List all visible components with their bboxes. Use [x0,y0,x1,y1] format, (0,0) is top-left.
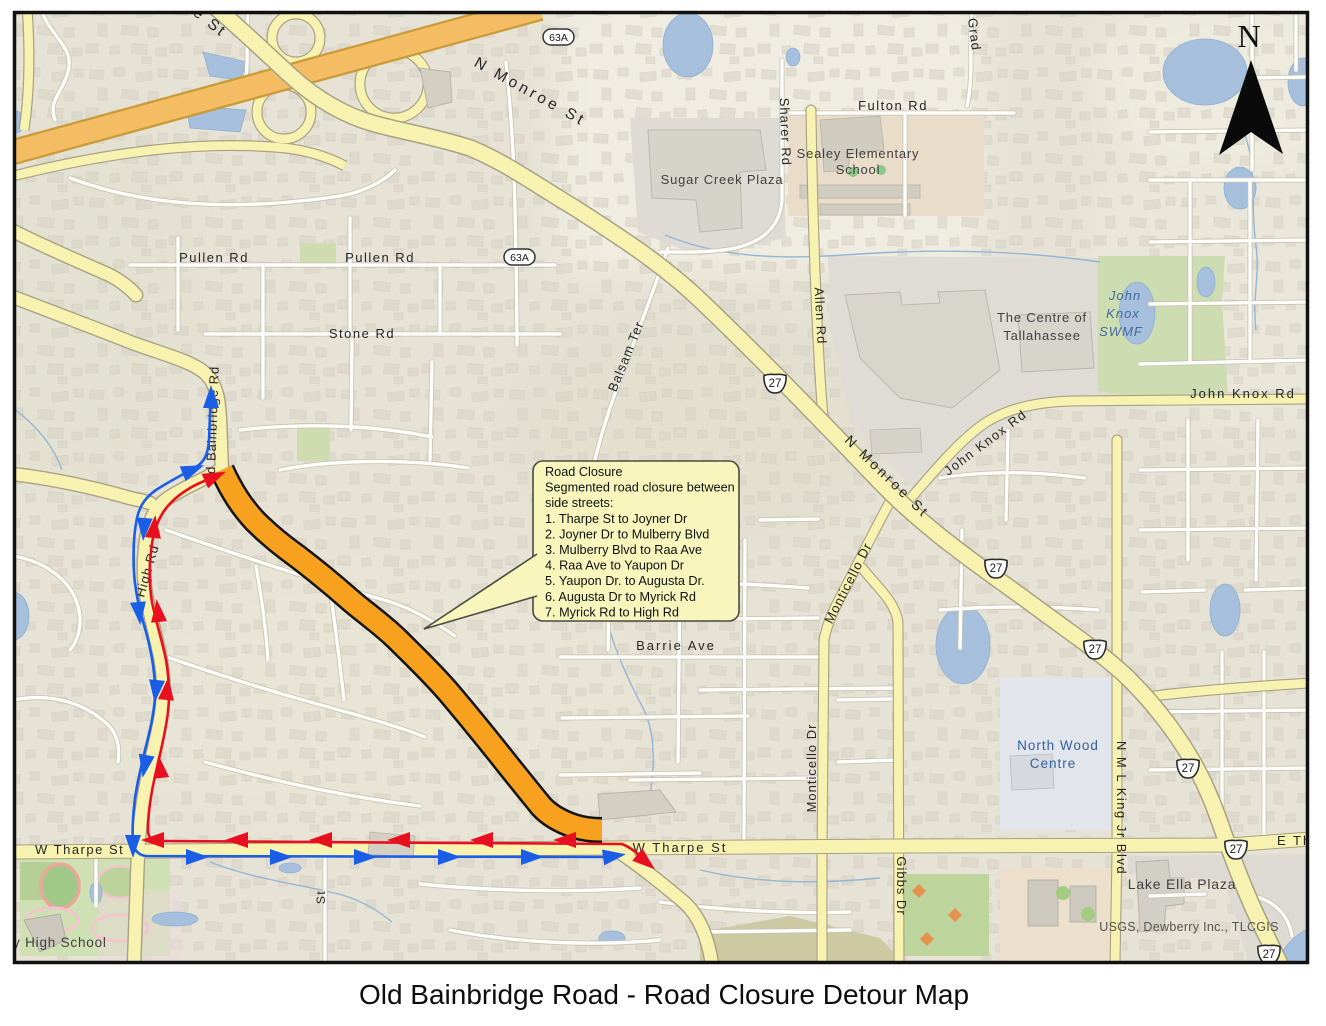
svg-text:N: N [1237,18,1260,54]
svg-text:The Centre of: The Centre of [997,310,1087,325]
svg-text:6. Augusta Dr to Myrick Rd: 6. Augusta Dr to Myrick Rd [545,590,696,604]
svg-text:SWMF: SWMF [1099,324,1143,339]
svg-text:Sugar Creek Plaza: Sugar Creek Plaza [661,172,784,187]
svg-text:Road Closure: Road Closure [545,465,623,479]
svg-text:Segmented road closure between: Segmented road closure between [545,481,735,495]
svg-text:y High School: y High School [13,935,107,950]
svg-text:Monticello Dr: Monticello Dr [804,724,819,813]
svg-text:Barrie Ave: Barrie Ave [636,638,716,653]
svg-text:Old Bainbridge Road - Road Clo: Old Bainbridge Road - Road Closure Detou… [359,979,969,1010]
svg-text:Fulton Rd: Fulton Rd [858,98,928,113]
svg-text:John Knox Rd: John Knox Rd [1190,386,1296,401]
svg-text:John: John [1108,288,1141,303]
svg-text:1. Tharpe St to Joyner Dr: 1. Tharpe St to Joyner Dr [545,512,688,526]
svg-text:3. Mulberry Blvd to Raa Ave: 3. Mulberry Blvd to Raa Ave [545,543,702,557]
svg-text:School: School [836,162,881,177]
svg-text:Pullen Rd: Pullen Rd [345,250,415,265]
svg-text:63A: 63A [510,252,529,264]
svg-text:2. Joyner Dr to Mulberry Blvd: 2. Joyner Dr to Mulberry Blvd [545,527,709,541]
svg-text:Tallahassee: Tallahassee [1003,328,1080,343]
svg-text:Centre: Centre [1030,756,1077,771]
svg-text:W Tharpe St: W Tharpe St [633,840,728,855]
svg-text:side streets:: side streets: [545,496,613,510]
svg-text:Gibbs Dr: Gibbs Dr [894,856,909,915]
svg-text:Stone Rd: Stone Rd [329,326,395,341]
svg-text:Pullen Rd: Pullen Rd [179,250,249,265]
svg-text:USGS, Dewberry Inc., TLCGIS: USGS, Dewberry Inc., TLCGIS [1099,920,1278,934]
svg-text:5. Yaupon Dr. to Augusta Dr.: 5. Yaupon Dr. to Augusta Dr. [545,574,705,588]
svg-text:W Tharpe St: W Tharpe St [35,842,124,857]
svg-text:North Wood: North Wood [1017,738,1099,753]
svg-text:Sealey Elementary: Sealey Elementary [797,146,920,161]
svg-text:Knox: Knox [1106,306,1140,321]
svg-text:Allen Rd: Allen Rd [812,287,830,345]
svg-text:Lake Ella Plaza: Lake Ella Plaza [1128,876,1237,892]
svg-text:4. Raa Ave to Yaupon Dr: 4. Raa Ave to Yaupon Dr [545,559,685,573]
svg-text:63A: 63A [549,32,568,44]
svg-text:Sharer Rd: Sharer Rd [777,97,794,166]
svg-text:7. Myrick Rd to High Rd: 7. Myrick Rd to High Rd [545,605,679,619]
svg-text:St: St [314,890,328,904]
svg-text:N M L King Jr Blvd: N M L King Jr Blvd [1114,741,1129,875]
